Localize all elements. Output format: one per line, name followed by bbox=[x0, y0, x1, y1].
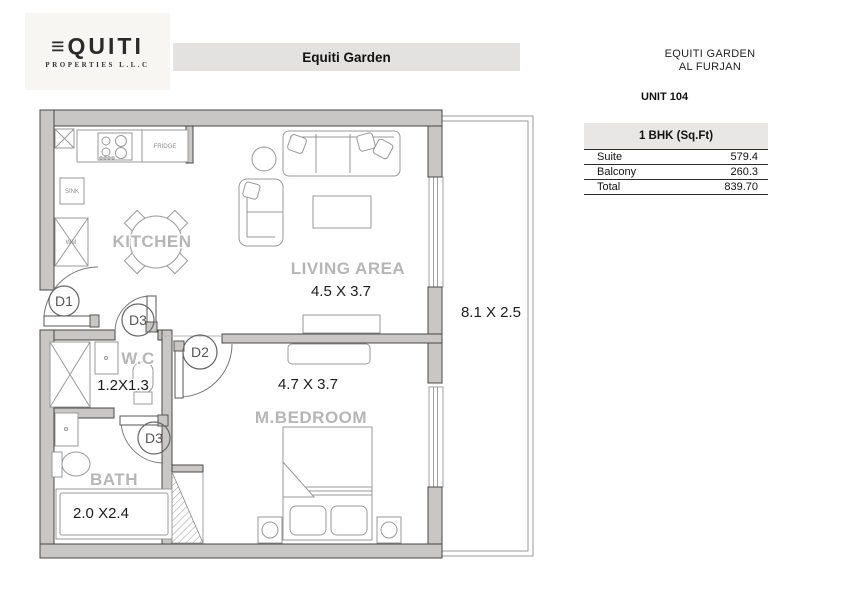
wall-wc-top bbox=[54, 330, 115, 340]
sink-label: SINK bbox=[65, 189, 79, 195]
floor-plan-drawing: FRIDGE SINK WM bbox=[0, 0, 849, 600]
tv-cabinet bbox=[303, 315, 380, 333]
wall-right-1 bbox=[428, 126, 442, 177]
wall-bottom bbox=[40, 544, 442, 558]
wall-living-bedroom bbox=[222, 334, 442, 343]
bath-toilet bbox=[52, 452, 90, 477]
bedroom-dim: 4.7 X 3.7 bbox=[278, 376, 338, 393]
bath-vanity bbox=[55, 413, 78, 446]
stove bbox=[98, 133, 132, 160]
balcony-parapet bbox=[442, 116, 533, 556]
door-label-d2: D2 bbox=[183, 335, 217, 369]
door-d1-text: D1 bbox=[55, 293, 73, 309]
shower bbox=[50, 342, 90, 407]
fridge: FRIDGE bbox=[142, 130, 188, 162]
nightstand-left bbox=[258, 517, 282, 543]
wm-label: WM bbox=[66, 240, 77, 246]
kitchen-corner-unit bbox=[55, 129, 74, 148]
wall-right-3 bbox=[428, 487, 442, 544]
bedroom-label: M.BEDROOM bbox=[255, 408, 367, 427]
floor-plan-page: ≡QUITI PROPERTIES L.L.C Equiti Garden EQ… bbox=[0, 0, 849, 600]
coffee-table bbox=[313, 196, 371, 228]
kitchen-sink: SINK bbox=[60, 178, 84, 204]
living-dim: 4.5 X 3.7 bbox=[311, 283, 371, 300]
washing-machine: WM bbox=[55, 218, 88, 266]
fridge-label: FRIDGE bbox=[154, 144, 177, 150]
balcony-dim: 8.1 X 2.5 bbox=[461, 304, 521, 321]
wall-top bbox=[40, 110, 442, 126]
door-d2-text: D2 bbox=[191, 344, 209, 360]
wall-shaft-top bbox=[172, 465, 203, 472]
kitchen-label: KITCHEN bbox=[112, 232, 191, 251]
side-table bbox=[252, 147, 276, 171]
nightstand-right bbox=[377, 517, 401, 543]
door-label-d1: D1 bbox=[49, 286, 79, 316]
bath-label: BATH bbox=[90, 470, 138, 489]
wc-vanity bbox=[95, 342, 118, 374]
wc-dim: 1.2X1.3 bbox=[97, 377, 149, 394]
wall-left-upper bbox=[40, 110, 54, 290]
window-living bbox=[429, 177, 443, 287]
bath-dim: 2.0 X2.4 bbox=[73, 505, 129, 522]
shaft-hatch bbox=[172, 472, 203, 543]
sofa bbox=[283, 131, 400, 176]
dresser bbox=[288, 344, 370, 364]
wc-label: W.C bbox=[121, 349, 155, 368]
window-bedroom bbox=[429, 387, 443, 487]
door-d3-wc-text: D3 bbox=[129, 312, 147, 328]
bed bbox=[283, 427, 372, 540]
living-label: LIVING AREA bbox=[291, 259, 405, 278]
door-d3-bath-text: D3 bbox=[145, 430, 163, 446]
armchair bbox=[239, 179, 283, 246]
